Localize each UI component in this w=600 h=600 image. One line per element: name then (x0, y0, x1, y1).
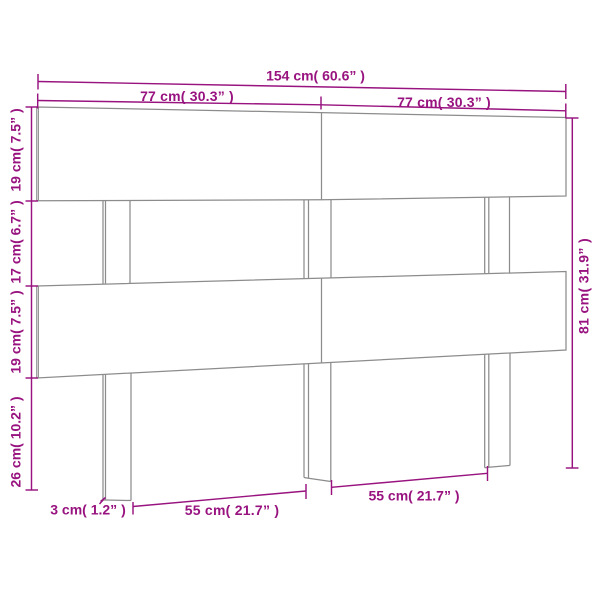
svg-text:81 cm( 31.9” ): 81 cm( 31.9” ) (576, 238, 592, 334)
svg-text:19 cm( 7.5” ): 19 cm( 7.5” ) (8, 108, 24, 191)
svg-text:154 cm( 60.6” ): 154 cm( 60.6” ) (266, 68, 365, 84)
svg-text:19 cm( 7.5” ): 19 cm( 7.5” ) (8, 290, 24, 373)
svg-text:26 cm( 10.2” ): 26 cm( 10.2” ) (8, 396, 24, 487)
svg-text:55 cm( 21.7” ): 55 cm( 21.7” ) (185, 502, 280, 518)
svg-text:77 cm( 30.3” ): 77 cm( 30.3” ) (397, 94, 491, 110)
svg-text:55 cm( 21.7” ): 55 cm( 21.7” ) (368, 488, 459, 504)
svg-text:3 cm( 1.2” ): 3 cm( 1.2” ) (50, 502, 125, 518)
svg-text:17 cm( 6.7” ): 17 cm( 6.7” ) (8, 200, 24, 283)
svg-text:77 cm( 30.3” ): 77 cm( 30.3” ) (140, 88, 234, 104)
